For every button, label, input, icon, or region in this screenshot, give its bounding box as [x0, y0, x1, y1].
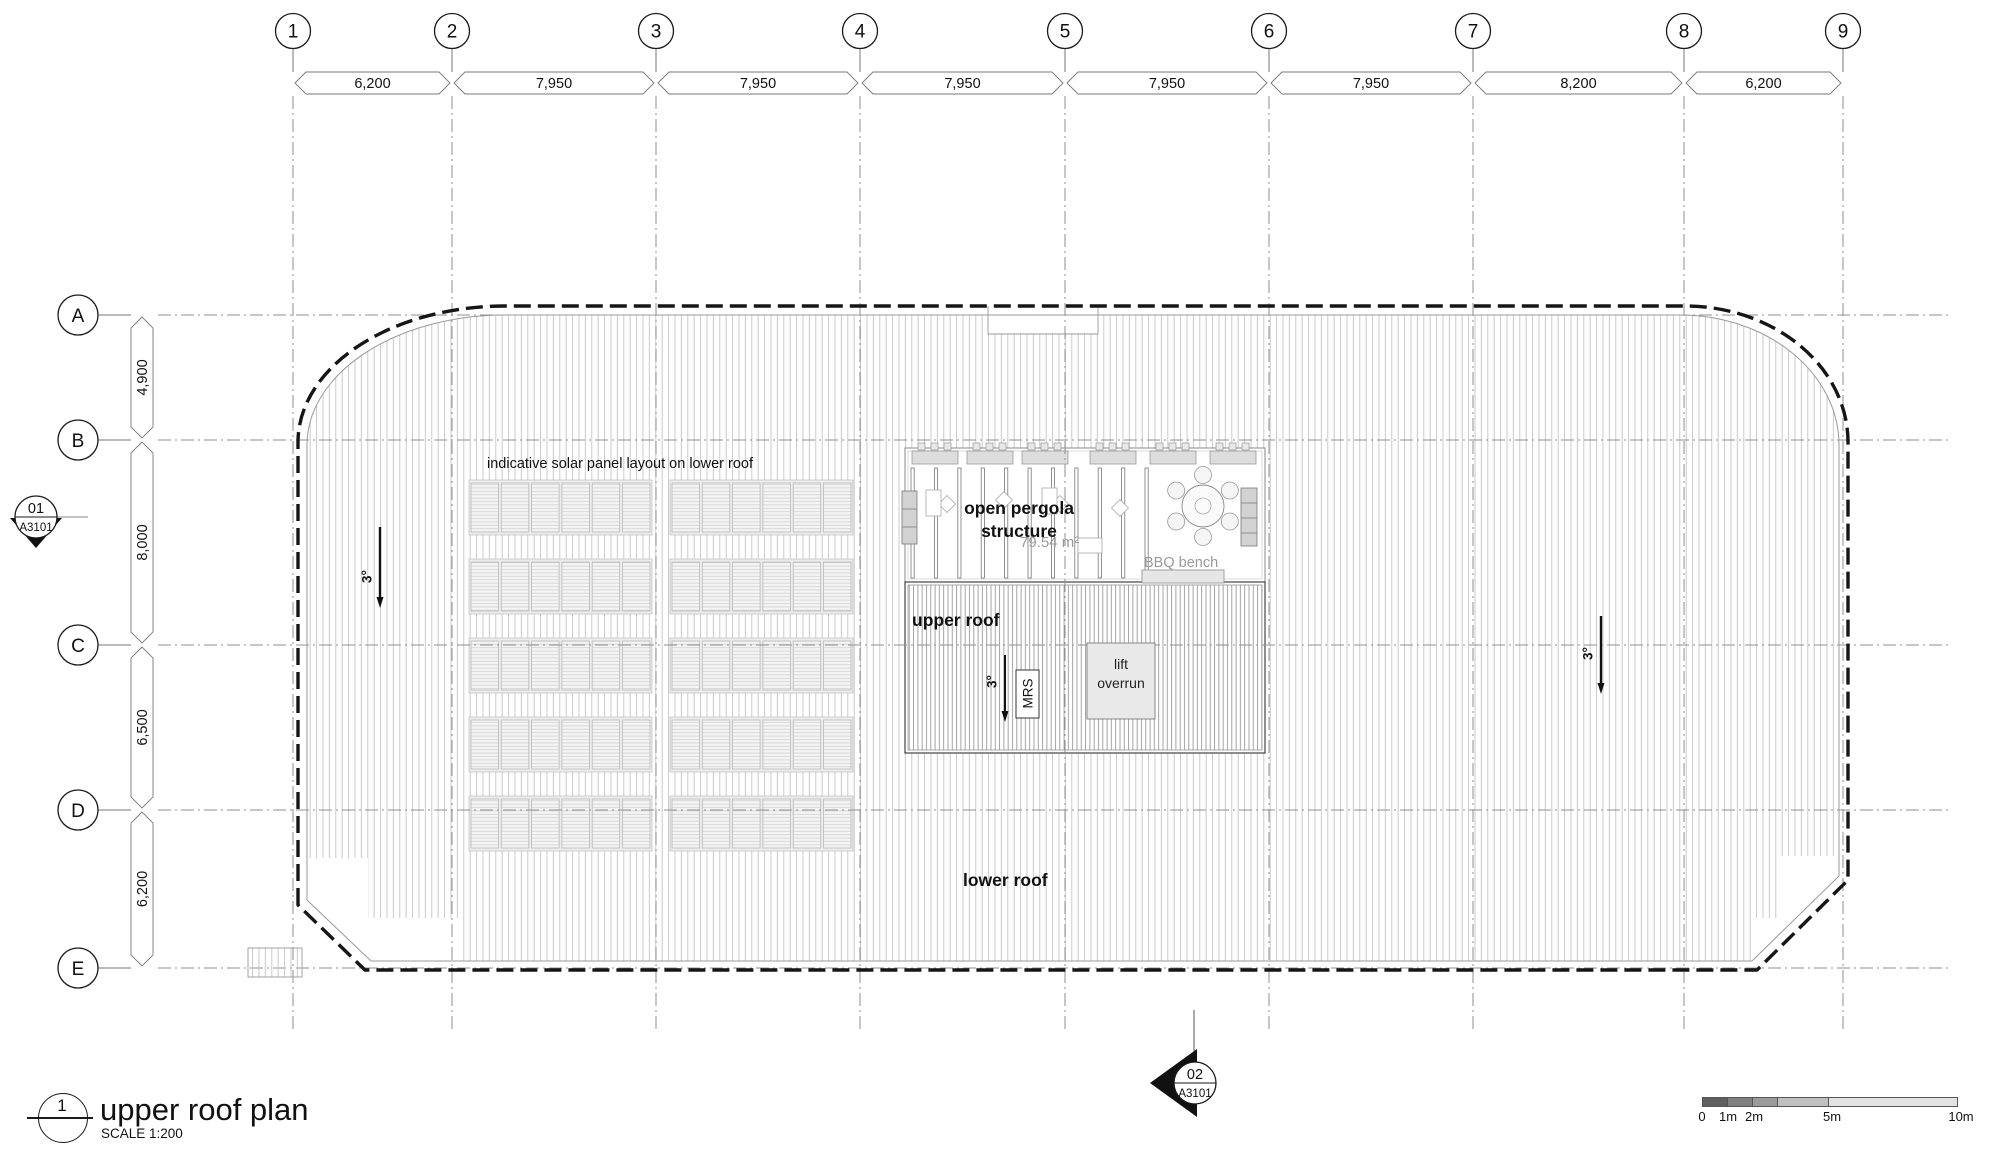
pergola-bench — [1210, 451, 1256, 464]
solar-panel — [501, 562, 529, 611]
solar-panel — [824, 641, 852, 690]
hatch-step — [367, 918, 461, 962]
pergola-post — [934, 468, 937, 578]
pergola-chair — [1054, 443, 1061, 450]
drawing-sheet: 01A310102A31011234567896,2007,9507,9507,… — [0, 0, 2000, 1157]
pergola-post — [1098, 468, 1101, 578]
pergola-chair — [1242, 443, 1249, 450]
pergola-chair — [973, 443, 980, 450]
dimension-text: 8,200 — [1560, 76, 1596, 92]
solar-panel — [733, 483, 761, 532]
table-chair — [1221, 513, 1238, 530]
solar-panel — [592, 641, 620, 690]
dimension-text: 7,950 — [944, 76, 980, 92]
detail-number: 1 — [38, 1096, 86, 1116]
solar-panel — [532, 641, 560, 690]
pergola-label-line2: structure — [944, 521, 1094, 542]
grid-bubble-col-label: 5 — [1060, 22, 1071, 43]
solar-panel — [672, 720, 700, 769]
solar-panel — [702, 720, 730, 769]
solar-panel — [532, 799, 560, 848]
bbq-bench — [1142, 570, 1224, 583]
pergola-chair — [1096, 443, 1103, 450]
scale-bar-segment — [1702, 1097, 1728, 1107]
solar-panel — [471, 799, 499, 848]
pergola-chair — [944, 443, 951, 450]
pergola-sofa — [1241, 488, 1257, 546]
solar-panel — [733, 720, 761, 769]
grid-bubble-row-label: A — [72, 306, 85, 327]
dimension-text: 7,950 — [1353, 76, 1389, 92]
grid-bubble-col-label: 9 — [1838, 22, 1849, 43]
solar-panel — [672, 641, 700, 690]
pergola-chair — [1122, 443, 1129, 450]
pergola-sofa — [902, 491, 917, 544]
solar-panel — [592, 720, 620, 769]
mrs-label: MRS — [1021, 654, 1036, 734]
solar-panel — [702, 562, 730, 611]
pergola-chair — [986, 443, 993, 450]
graphic-scale-bar: 01m2m5m10m — [1702, 1097, 1962, 1127]
solar-panel — [562, 562, 590, 611]
solar-panel — [672, 562, 700, 611]
solar-panel — [672, 483, 700, 532]
table-chair — [1221, 482, 1238, 499]
pergola-chair — [999, 443, 1006, 450]
solar-panel — [562, 483, 590, 532]
section-marker-02: 02A3101 — [1150, 1010, 1216, 1117]
solar-panel — [763, 799, 791, 848]
section-marker-number: 02 — [1187, 1067, 1203, 1083]
solar-panel — [592, 562, 620, 611]
pergola-bench — [1090, 451, 1136, 464]
bbq-bench-label: BBQ bench — [1144, 555, 1218, 571]
pergola-chair — [1041, 443, 1048, 450]
pergola-chair — [1156, 443, 1163, 450]
scale-bar-segment — [1777, 1097, 1829, 1107]
pergola-bench — [967, 451, 1013, 464]
solar-panel — [702, 799, 730, 848]
drawing-scale: SCALE 1:200 — [101, 1126, 183, 1141]
solar-panel — [793, 799, 821, 848]
solar-panel — [592, 483, 620, 532]
scale-bar-label: 10m — [1948, 1109, 1973, 1124]
dimension-text: 7,950 — [1149, 76, 1185, 92]
table-chair — [1195, 529, 1212, 546]
grid-bubble-row-label: D — [71, 801, 85, 822]
scale-bar-label: 0 — [1698, 1109, 1705, 1124]
solar-panel — [763, 562, 791, 611]
dimension-text: 6,500 — [135, 709, 151, 745]
solar-panel — [763, 483, 791, 532]
section-marker-sheet: A3101 — [19, 522, 52, 534]
solar-panel — [623, 483, 651, 532]
solar-panel — [702, 483, 730, 532]
dimension-text: 6,200 — [1745, 76, 1781, 92]
scale-bar-label: 5m — [1823, 1109, 1841, 1124]
upper-roof-label: upper roof — [912, 610, 1000, 631]
solar-panel — [623, 799, 651, 848]
solar-panel — [702, 641, 730, 690]
solar-panel — [592, 799, 620, 848]
roof-edge-notch — [988, 306, 1098, 334]
table-chair — [1168, 513, 1185, 530]
pergola-chair — [931, 443, 938, 450]
scale-bar-segment — [1727, 1097, 1753, 1107]
grid-bubble-row-label: E — [72, 959, 85, 980]
table-chair — [1168, 482, 1185, 499]
detail-circle-line — [27, 1117, 93, 1119]
solar-panel — [824, 799, 852, 848]
scale-bar-label: 1m — [1719, 1109, 1737, 1124]
section-marker-01: 01A3101 — [10, 496, 62, 548]
scale-bar-segment — [1828, 1097, 1958, 1107]
solar-panel — [672, 799, 700, 848]
solar-panel — [501, 641, 529, 690]
pergola-chair — [1109, 443, 1116, 450]
solar-panel — [763, 641, 791, 690]
solar-panel — [824, 562, 852, 611]
solar-panel — [562, 720, 590, 769]
solar-panel — [501, 483, 529, 532]
dimension-text: 4,900 — [135, 359, 151, 395]
pergola-label-line1: open pergola — [944, 498, 1094, 519]
section-marker-sheet: A3101 — [1178, 1088, 1211, 1100]
pergola-chair — [1182, 443, 1189, 450]
slope-label-left: 3° — [360, 557, 375, 597]
lower-roof-projection — [248, 948, 302, 977]
pergola-bench — [1150, 451, 1196, 464]
pergola-table — [926, 490, 941, 516]
pergola-chair — [1169, 443, 1176, 450]
solar-panel — [471, 483, 499, 532]
dimension-text: 7,950 — [536, 76, 572, 92]
solar-panel — [501, 799, 529, 848]
solar-panel — [532, 483, 560, 532]
solar-panel — [793, 641, 821, 690]
dimension-text: 7,950 — [740, 76, 776, 92]
solar-panel — [824, 720, 852, 769]
solar-panel — [793, 483, 821, 532]
plan-drawing-svg: 01A310102A31011234567896,2007,9507,9507,… — [0, 0, 2000, 1157]
solar-panel — [501, 720, 529, 769]
solar-panel — [733, 641, 761, 690]
section-marker-number: 01 — [28, 501, 44, 517]
solar-note-label: indicative solar panel layout on lower r… — [487, 456, 753, 472]
grid-bubble-col-label: 2 — [447, 22, 458, 43]
grid-bubble-row-label: B — [72, 431, 85, 452]
solar-panel — [824, 483, 852, 532]
solar-panel — [763, 720, 791, 769]
solar-panel — [623, 641, 651, 690]
scale-bar-segment — [1752, 1097, 1778, 1107]
dimension-text: 8,000 — [135, 524, 151, 560]
solar-panel — [471, 720, 499, 769]
solar-panel — [733, 562, 761, 611]
pergola-post — [1122, 468, 1125, 578]
solar-panel — [623, 562, 651, 611]
pergola-chair — [918, 443, 925, 450]
lift-overrun-label: lift overrun — [1087, 655, 1155, 693]
grid-bubble-row-label: C — [71, 636, 85, 657]
grid-bubble-col-label: 4 — [855, 22, 866, 43]
grid-bubble-col-label: 7 — [1468, 22, 1479, 43]
grid-bubble-col-label: 8 — [1679, 22, 1690, 43]
solar-panel — [733, 799, 761, 848]
table-chair — [1195, 467, 1212, 484]
pergola-chair — [1216, 443, 1223, 450]
hatch-step — [1777, 856, 1840, 962]
scale-bar-label: 2m — [1745, 1109, 1763, 1124]
solar-panel — [532, 562, 560, 611]
solar-panel — [793, 720, 821, 769]
solar-panel — [471, 641, 499, 690]
dimension-text: 6,200 — [354, 76, 390, 92]
solar-panel — [562, 799, 590, 848]
slope-label-center: 3° — [985, 662, 1000, 702]
lower-roof-label: lower roof — [963, 870, 1048, 891]
upper-roof — [905, 582, 1265, 753]
pergola-chair — [1229, 443, 1236, 450]
solar-panel — [471, 562, 499, 611]
grid-bubble-col-label: 3 — [651, 22, 662, 43]
solar-panel — [623, 720, 651, 769]
solar-panel — [562, 641, 590, 690]
dimension-text: 6,200 — [135, 871, 151, 907]
pergola-bench — [1022, 451, 1068, 464]
scale-bar-segments — [1702, 1097, 1962, 1107]
grid-bubble-col-label: 6 — [1264, 22, 1275, 43]
solar-panel — [532, 720, 560, 769]
pergola-chair — [1028, 443, 1035, 450]
grid-bubble-col-label: 1 — [288, 22, 299, 43]
solar-panel — [793, 562, 821, 611]
pergola-bench — [912, 451, 958, 464]
drawing-title: upper roof plan — [100, 1092, 309, 1128]
hatch-step — [306, 858, 368, 962]
slope-label-right: 3° — [1581, 634, 1596, 674]
